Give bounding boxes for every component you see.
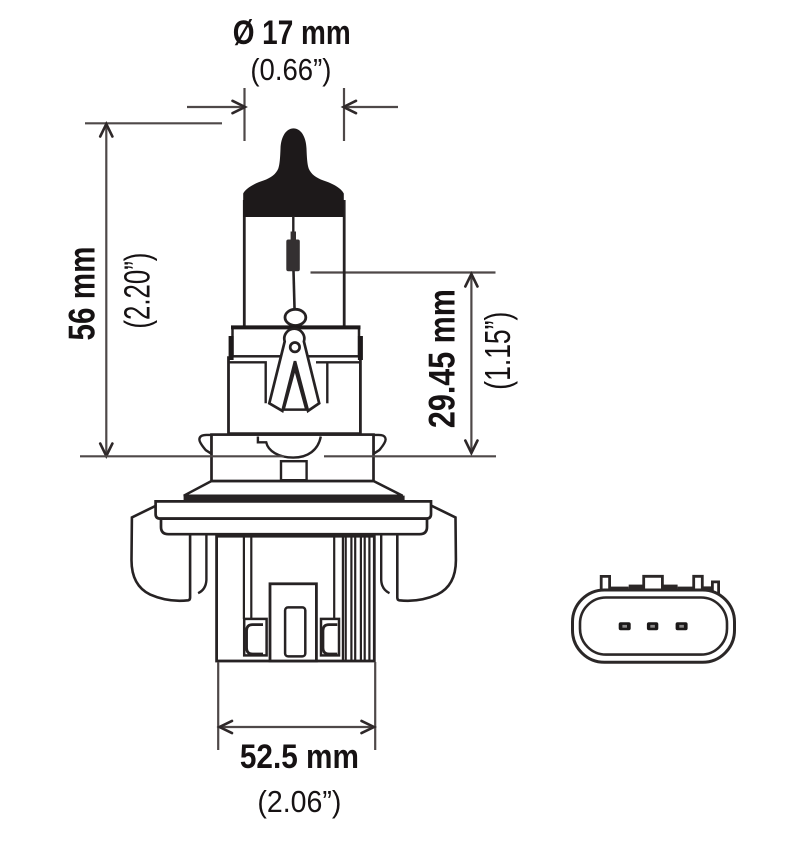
svg-text:56 mm: 56 mm — [62, 247, 103, 341]
svg-text:29.45 mm: 29.45 mm — [422, 289, 463, 428]
svg-text:52.5 mm: 52.5 mm — [240, 738, 359, 776]
svg-text:(1.15”): (1.15”) — [477, 312, 518, 390]
svg-text:(2.06”): (2.06”) — [257, 784, 341, 819]
svg-text:(0.66”): (0.66”) — [250, 52, 331, 87]
svg-text:(2.20”): (2.20”) — [117, 253, 158, 329]
svg-text:Ø 17 mm: Ø 17 mm — [233, 14, 351, 52]
